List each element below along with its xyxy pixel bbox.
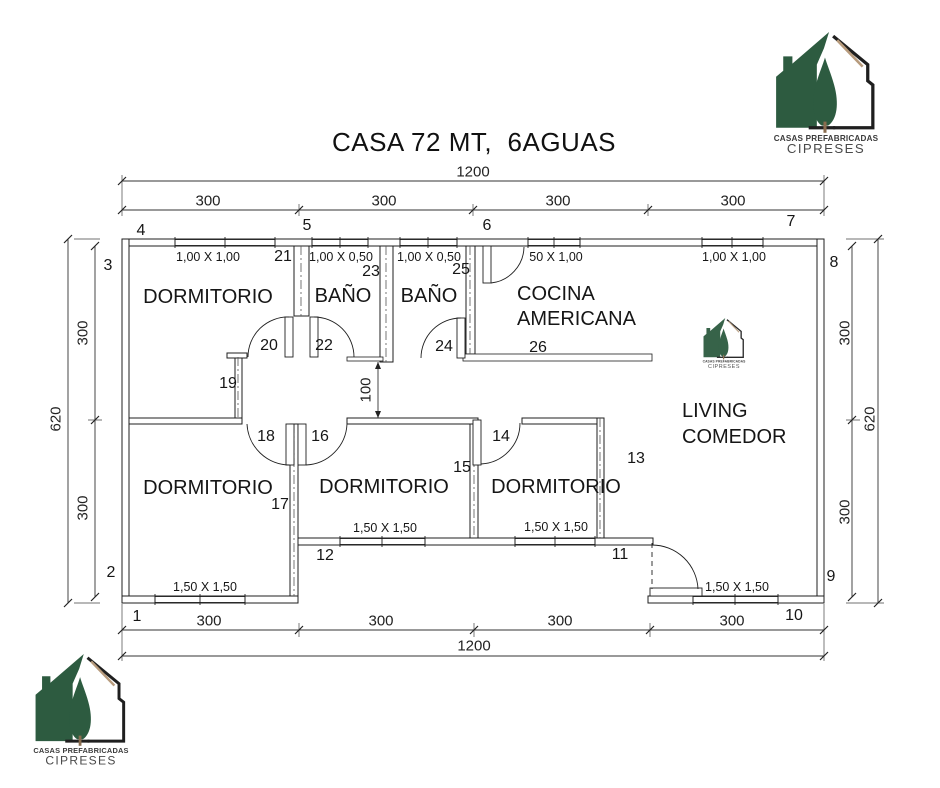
- room-label-living-line2: COMEDOR: [682, 427, 786, 447]
- dim-top-4: 300: [720, 194, 745, 209]
- room-label-cocina-line1: COCINA: [517, 284, 595, 304]
- point-label-3: 3: [104, 258, 113, 274]
- point-label-26: 26: [529, 340, 547, 356]
- logo-watermark: [703, 318, 747, 370]
- point-label-21: 21: [274, 249, 292, 265]
- room-label-dormitorio-s: DORMITORIO: [319, 477, 449, 497]
- dim-right-2: 300: [838, 499, 853, 524]
- point-label-17: 17: [271, 497, 289, 513]
- window-label-ne: 1,00 X 1,00: [702, 251, 766, 264]
- room-label-bano-1: BAÑO: [315, 286, 372, 306]
- point-label-19: 19: [219, 376, 237, 392]
- window-label-nw: 1,00 X 1,00: [176, 251, 240, 264]
- room-label-dormitorio-nw: DORMITORIO: [143, 287, 273, 307]
- dim-top-total: 1200: [456, 165, 489, 180]
- point-label-7: 7: [787, 214, 796, 230]
- dim-bottom-1: 300: [196, 614, 221, 629]
- point-label-6: 6: [483, 218, 492, 234]
- point-label-1: 1: [133, 609, 142, 625]
- dim-left-1: 300: [76, 320, 91, 345]
- floor-plan-drawing: CASAS PREFABRICADAS CIPRESES: [0, 0, 940, 788]
- logo-bottom-left: [33, 654, 128, 767]
- point-label-15: 15: [453, 460, 471, 476]
- dim-bottom-2: 300: [368, 614, 393, 629]
- dim-top-3: 300: [545, 194, 570, 209]
- point-label-20: 20: [260, 338, 278, 354]
- point-label-25: 25: [452, 262, 470, 278]
- window-label-entrance: 1,50 X 1,50: [705, 581, 769, 594]
- dim-left-total: 620: [49, 406, 64, 431]
- point-label-10: 10: [785, 608, 803, 624]
- point-label-5: 5: [303, 218, 312, 234]
- point-label-2: 2: [107, 565, 116, 581]
- window-label-cocina: 50 X 1,00: [529, 251, 583, 264]
- point-label-11: 11: [612, 547, 629, 563]
- point-label-4: 4: [137, 223, 146, 239]
- dim-bottom-total: 1200: [457, 639, 490, 654]
- window-label-bano1: 1,00 X 0,50: [309, 251, 373, 264]
- page-title: CASA 72 MT, 6AGUAS: [332, 129, 616, 155]
- dim-left-2: 300: [76, 495, 91, 520]
- point-label-24: 24: [435, 339, 453, 355]
- room-label-dormitorio-sw: DORMITORIO: [143, 478, 273, 498]
- window-label-s2: 1,50 X 1,50: [524, 521, 588, 534]
- window-label-sw: 1,50 X 1,50: [173, 581, 237, 594]
- dim-top-1: 300: [195, 194, 220, 209]
- point-label-14: 14: [492, 429, 510, 445]
- point-label-18: 18: [257, 429, 275, 445]
- point-label-9: 9: [827, 569, 836, 585]
- point-label-12: 12: [316, 548, 334, 564]
- room-label-bano-2: BAÑO: [401, 286, 458, 306]
- point-label-23: 23: [362, 264, 380, 280]
- point-label-8: 8: [830, 255, 839, 271]
- window-label-s1: 1,50 X 1,50: [353, 522, 417, 535]
- point-label-13: 13: [627, 451, 645, 467]
- room-label-living-line1: LIVING: [682, 401, 748, 421]
- point-label-22: 22: [315, 338, 333, 354]
- point-label-16: 16: [311, 429, 329, 445]
- dim-right-1: 300: [838, 320, 853, 345]
- dim-top-2: 300: [371, 194, 396, 209]
- room-label-dormitorio-se: DORMITORIO: [491, 477, 621, 497]
- logo-top-right: [774, 32, 879, 156]
- dim-bottom-4: 300: [719, 614, 744, 629]
- room-label-cocina-line2: AMERICANA: [517, 309, 636, 329]
- floor-plan: CASAS PREFABRICADAS CIPRESES: [0, 0, 940, 788]
- dim-right-total: 620: [863, 406, 878, 431]
- dim-hall-width: 100: [359, 377, 374, 402]
- dim-bottom-3: 300: [547, 614, 572, 629]
